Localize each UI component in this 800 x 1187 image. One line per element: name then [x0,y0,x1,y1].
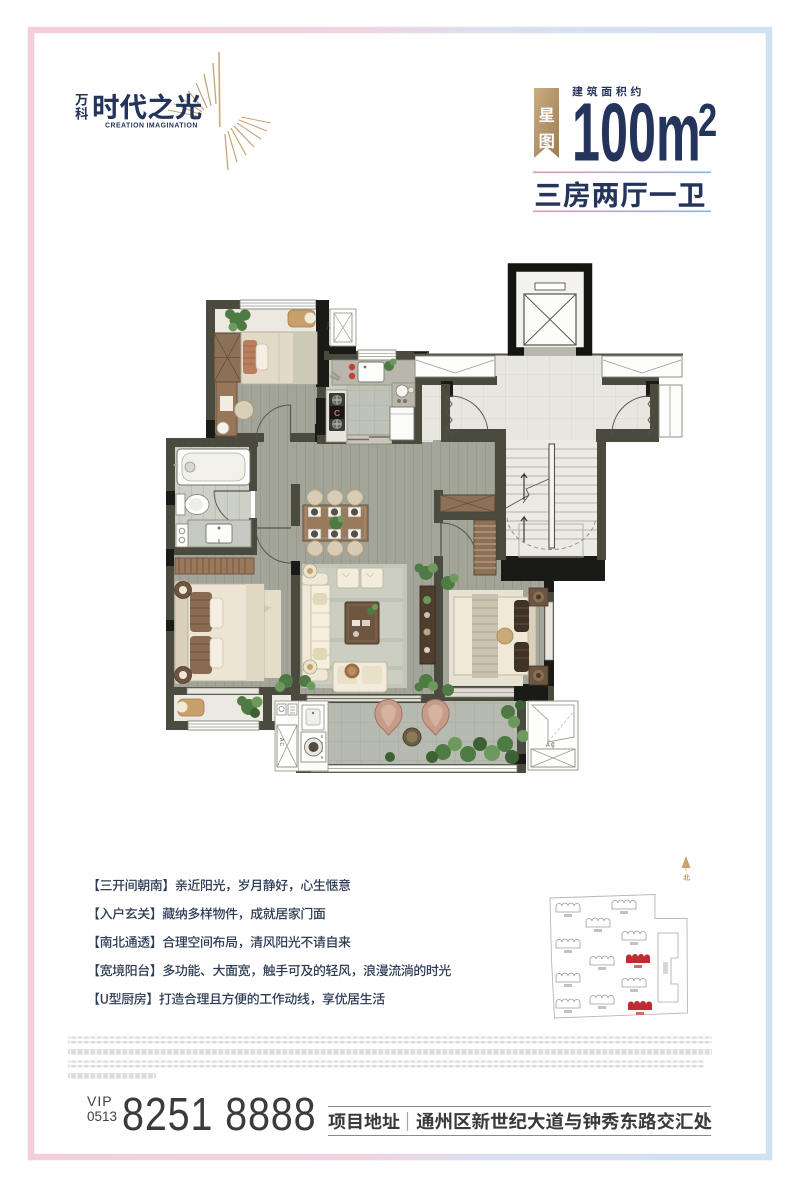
svg-text:0513: 0513 [87,1109,117,1124]
svg-text:100m: 100m [572,87,701,179]
svg-text:C: C [334,408,340,418]
svg-text:8251 8888: 8251 8888 [122,1089,316,1141]
svg-text:A C: A C [278,738,284,746]
svg-text:A C: A C [546,743,555,749]
svg-text:A.C: A.C [326,322,331,330]
svg-text:VIP: VIP [87,1093,113,1109]
svg-text:2: 2 [698,94,717,146]
svg-text:CREATION: CREATION [105,123,144,130]
svg-text:IMAGINATION: IMAGINATION [147,123,198,130]
